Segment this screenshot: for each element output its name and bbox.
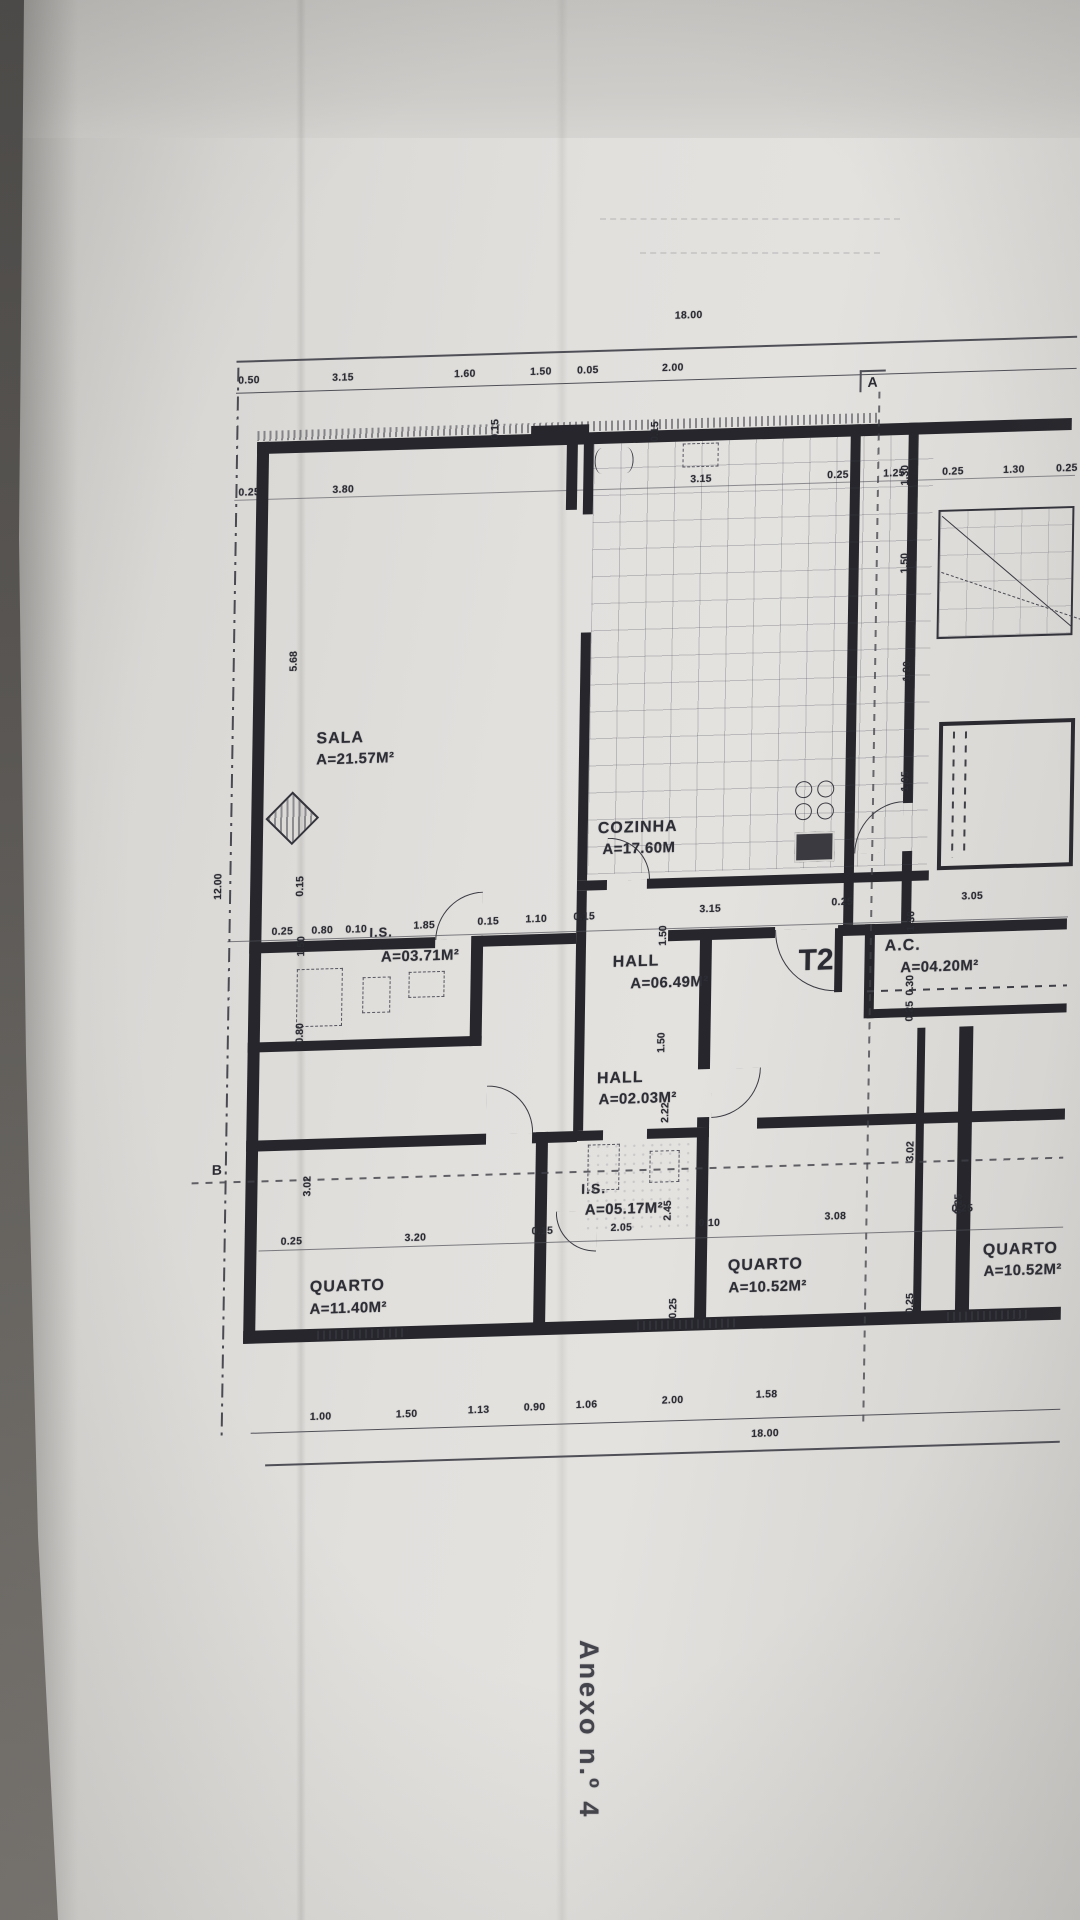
photographed-blueprint: 18.00 0.50 3.15 1.60 1.50 0.05 2.00 0.25…	[0, 0, 1080, 1920]
photo-vignette	[0, 0, 1080, 1920]
